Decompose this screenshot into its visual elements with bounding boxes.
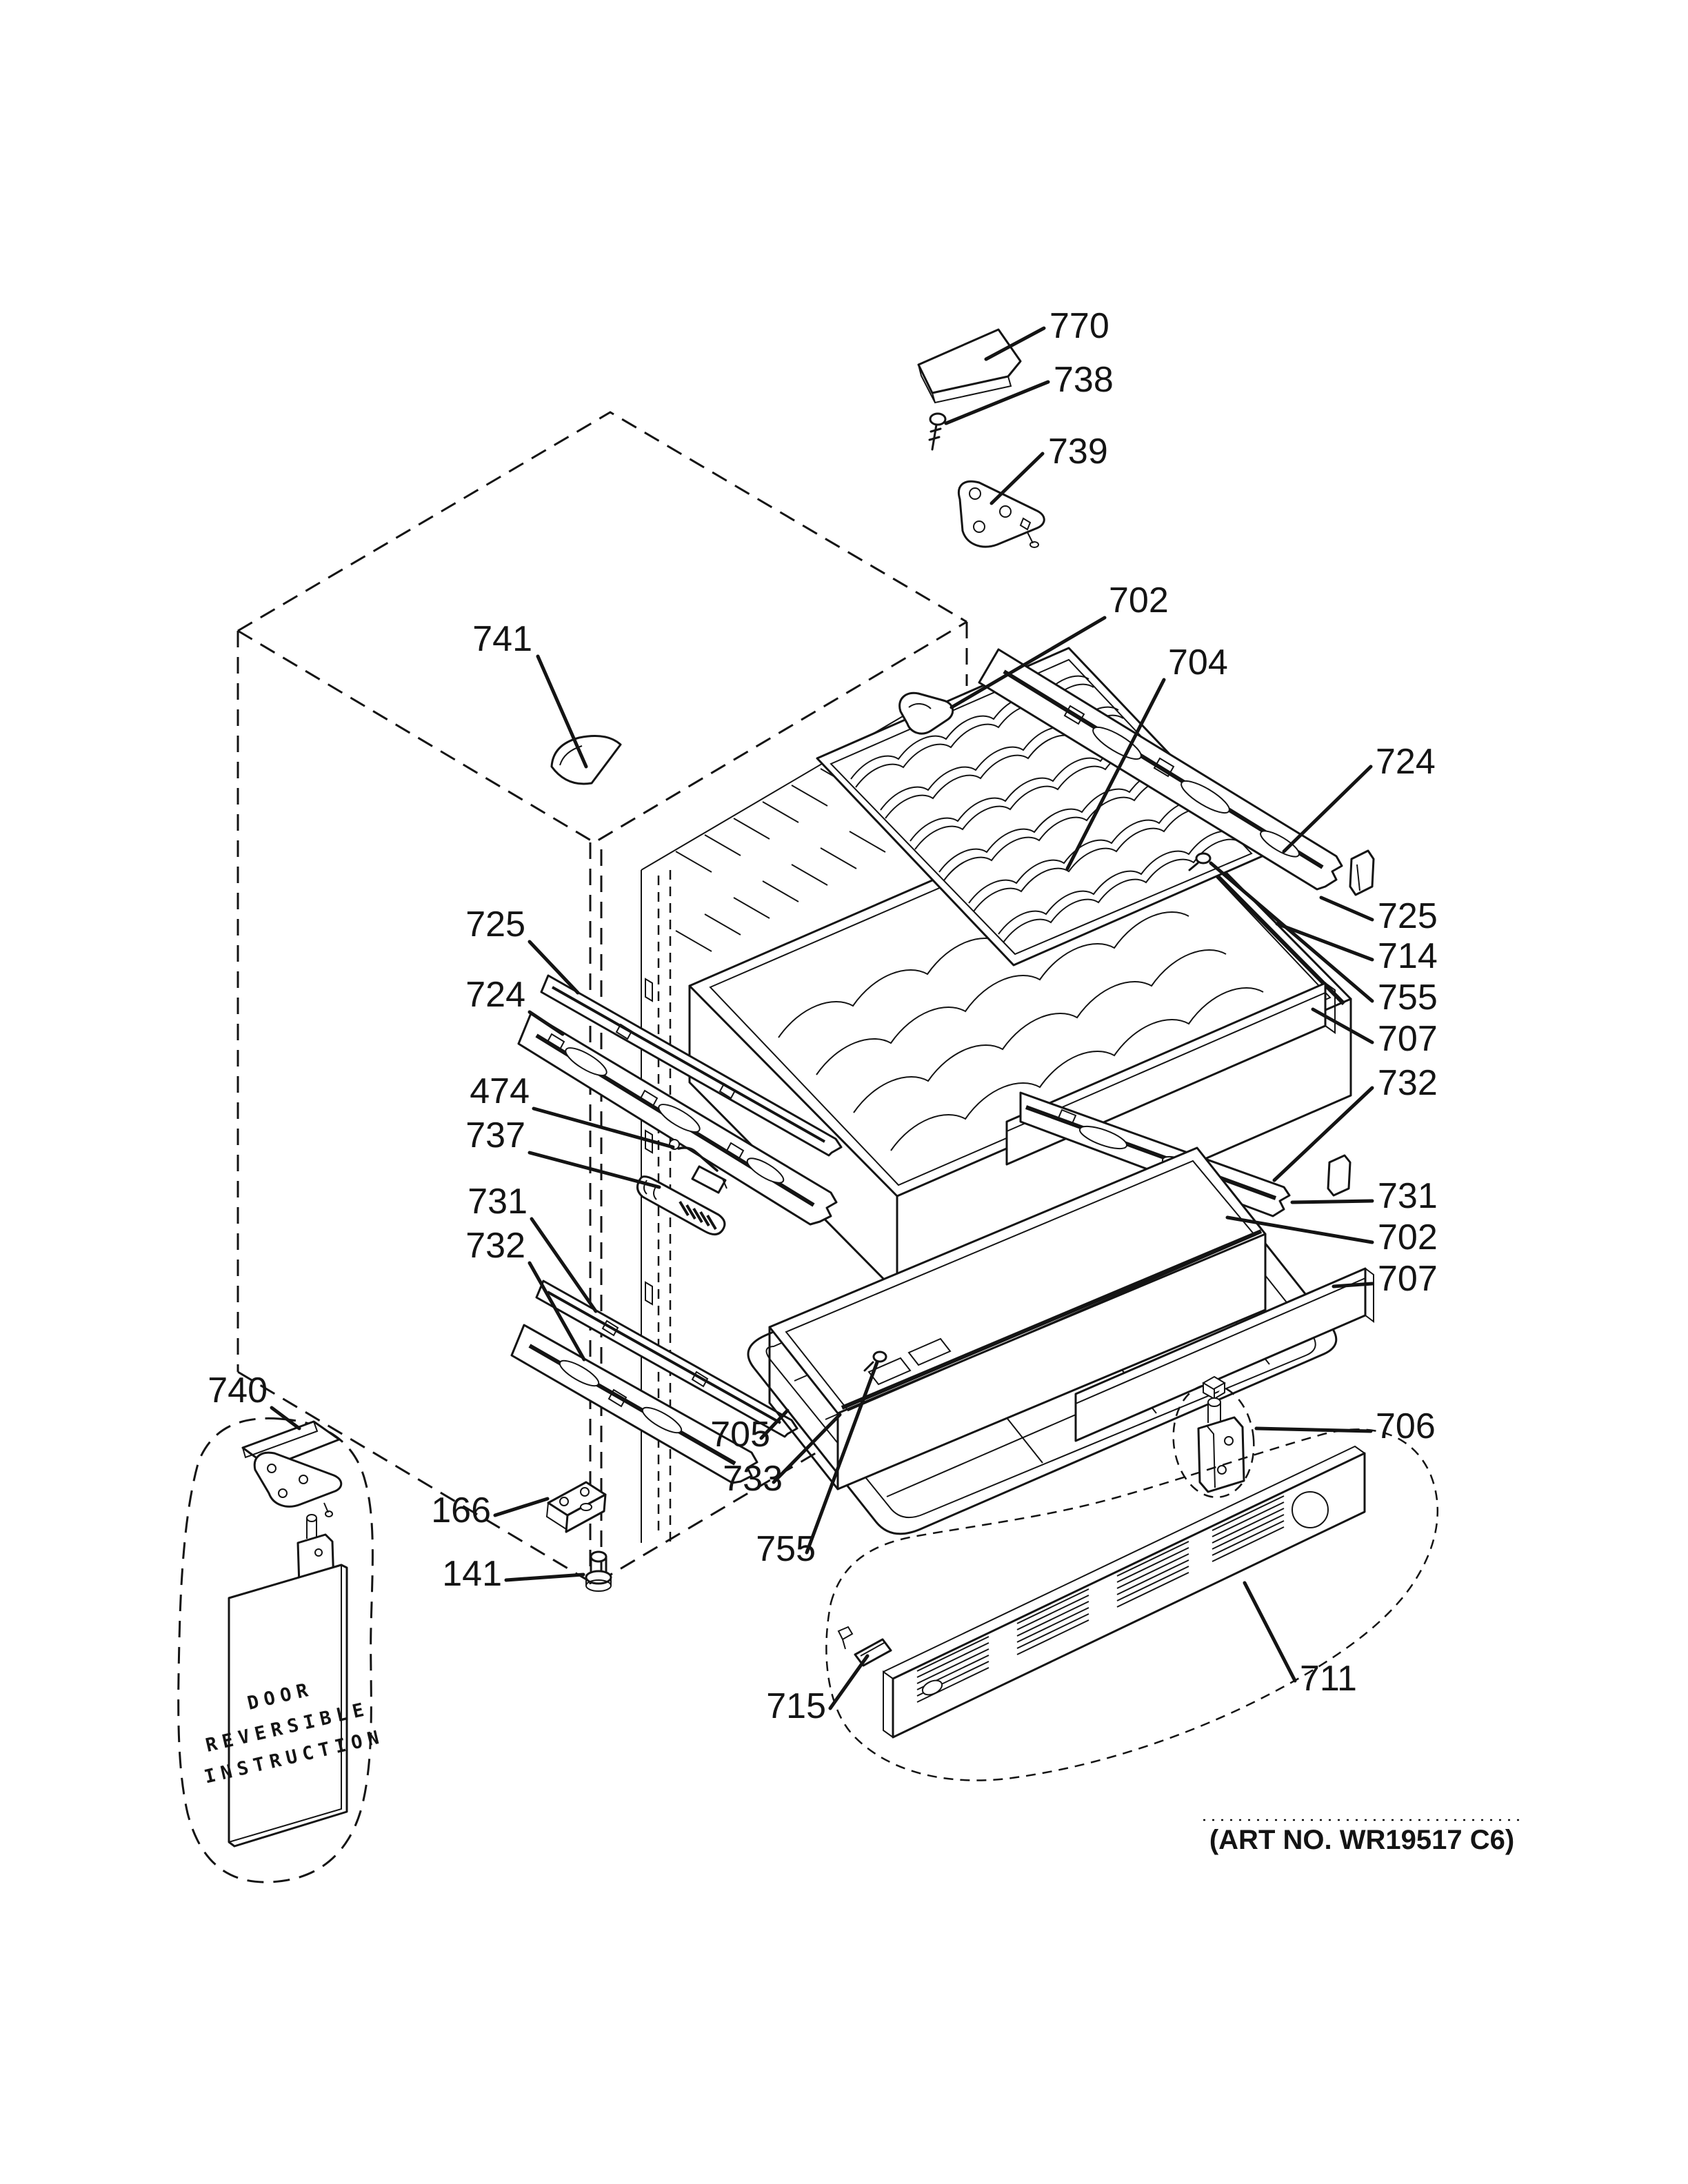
bracket-hole — [581, 1488, 589, 1496]
door-hinge-kit-bubble-740: DOOR REVERSIBLE INSTRUCTION — [179, 1418, 387, 1882]
callout-739: 739 — [1048, 432, 1108, 472]
kit-plate-pin-tip — [325, 1511, 332, 1517]
callout-738: 738 — [1054, 360, 1114, 400]
leader-line-732 — [1274, 1088, 1372, 1180]
hinge-bracket-hole — [1225, 1437, 1233, 1445]
callout-704: 704 — [1168, 643, 1228, 682]
callout-707: 707 — [1378, 1259, 1438, 1299]
kit-plate-hole — [268, 1464, 276, 1473]
hinge-bracket-166 — [547, 1482, 605, 1532]
hinge-plate-hole — [969, 488, 981, 499]
callout-711: 711 — [1300, 1659, 1357, 1699]
callout-141: 141 — [442, 1554, 502, 1594]
kit-hinge-plate — [254, 1453, 341, 1506]
callout-731: 731 — [1378, 1176, 1438, 1216]
callout-705: 705 — [710, 1415, 770, 1455]
kit-bracket-hole — [315, 1549, 322, 1556]
hinge-plate-hole — [974, 521, 985, 532]
clip-screw — [838, 1627, 852, 1649]
leader-line-166 — [495, 1499, 547, 1515]
callout-733: 733 — [723, 1459, 783, 1499]
leader-line-737 — [530, 1153, 659, 1187]
leader-line-725 — [1321, 898, 1372, 920]
callout-706: 706 — [1376, 1406, 1436, 1446]
screw-head — [1196, 853, 1210, 863]
leader-line-141 — [506, 1575, 583, 1580]
callout-732: 732 — [465, 1226, 525, 1266]
sensor-474-connector — [692, 1166, 725, 1193]
cabinet-top-far-edges — [238, 412, 967, 631]
art-number-text: (ART NO. WR19517 C6) — [1209, 1825, 1514, 1855]
screw-head — [874, 1352, 886, 1362]
screw-738-shank — [930, 425, 941, 449]
hinge-pin-top — [1208, 1398, 1220, 1406]
grille-hole — [1292, 1492, 1328, 1528]
callout-740: 740 — [208, 1371, 268, 1410]
bracket-hole — [560, 1497, 568, 1506]
hinge-bracket-hole — [1218, 1466, 1226, 1474]
top-hinge-parts — [918, 330, 1044, 547]
callout-707: 707 — [1378, 1019, 1438, 1059]
kit-plate-hole — [299, 1475, 308, 1484]
leader-line-715 — [830, 1656, 867, 1708]
cabinet-front-left-edge — [590, 842, 601, 1584]
callout-724: 724 — [465, 975, 525, 1015]
leader-line-739 — [992, 454, 1043, 503]
callout-770: 770 — [1049, 306, 1109, 346]
callout-714: 714 — [1378, 936, 1438, 976]
clip-plate — [855, 1639, 891, 1666]
bracket-slot — [581, 1504, 592, 1510]
callout-702: 702 — [1109, 580, 1169, 620]
callout-166: 166 — [431, 1490, 491, 1530]
callout-737: 737 — [465, 1115, 525, 1155]
art-number: (ART NO. WR19517 C6) — [1203, 1820, 1520, 1855]
callout-724: 724 — [1376, 742, 1436, 782]
top-cover-cap-741 — [552, 736, 621, 784]
callout-755: 755 — [756, 1529, 816, 1569]
exploded-parts-diagram: DOOR REVERSIBLE INSTRUCTION (ART NO. WR1… — [0, 0, 1688, 2184]
leg-top — [591, 1552, 606, 1561]
hinge-bracket-plate — [1198, 1417, 1244, 1492]
leader-line-738 — [946, 382, 1048, 423]
screw-738-head — [930, 414, 945, 425]
hinge-cover-770 — [918, 330, 1021, 393]
callout-755: 755 — [1378, 978, 1438, 1018]
kit-pin-top — [307, 1515, 316, 1521]
hinge-pin-tip — [1030, 542, 1038, 547]
cabinet-top-near-edges — [238, 622, 967, 842]
hinge-plate-hole — [1000, 506, 1011, 517]
kit-plate-hole — [279, 1489, 287, 1497]
leader-line-731 — [1292, 1201, 1372, 1202]
callout-741: 741 — [472, 619, 532, 659]
rail-clip-725-right — [1350, 851, 1374, 895]
diagram-page: DOOR REVERSIBLE INSTRUCTION (ART NO. WR1… — [0, 0, 1688, 2184]
callout-731: 731 — [468, 1182, 527, 1222]
rail-clip-731-right — [1328, 1155, 1350, 1195]
instruction-card: DOOR REVERSIBLE INSTRUCTION — [188, 1565, 386, 1846]
callout-702: 702 — [1378, 1217, 1438, 1257]
leader-line-711 — [1245, 1583, 1295, 1681]
callout-732: 732 — [1378, 1063, 1438, 1103]
callout-725: 725 — [1378, 896, 1438, 936]
callout-715: 715 — [766, 1686, 826, 1726]
leader-line-724 — [1284, 767, 1371, 851]
callout-474: 474 — [470, 1071, 530, 1111]
callout-725: 725 — [465, 904, 525, 944]
